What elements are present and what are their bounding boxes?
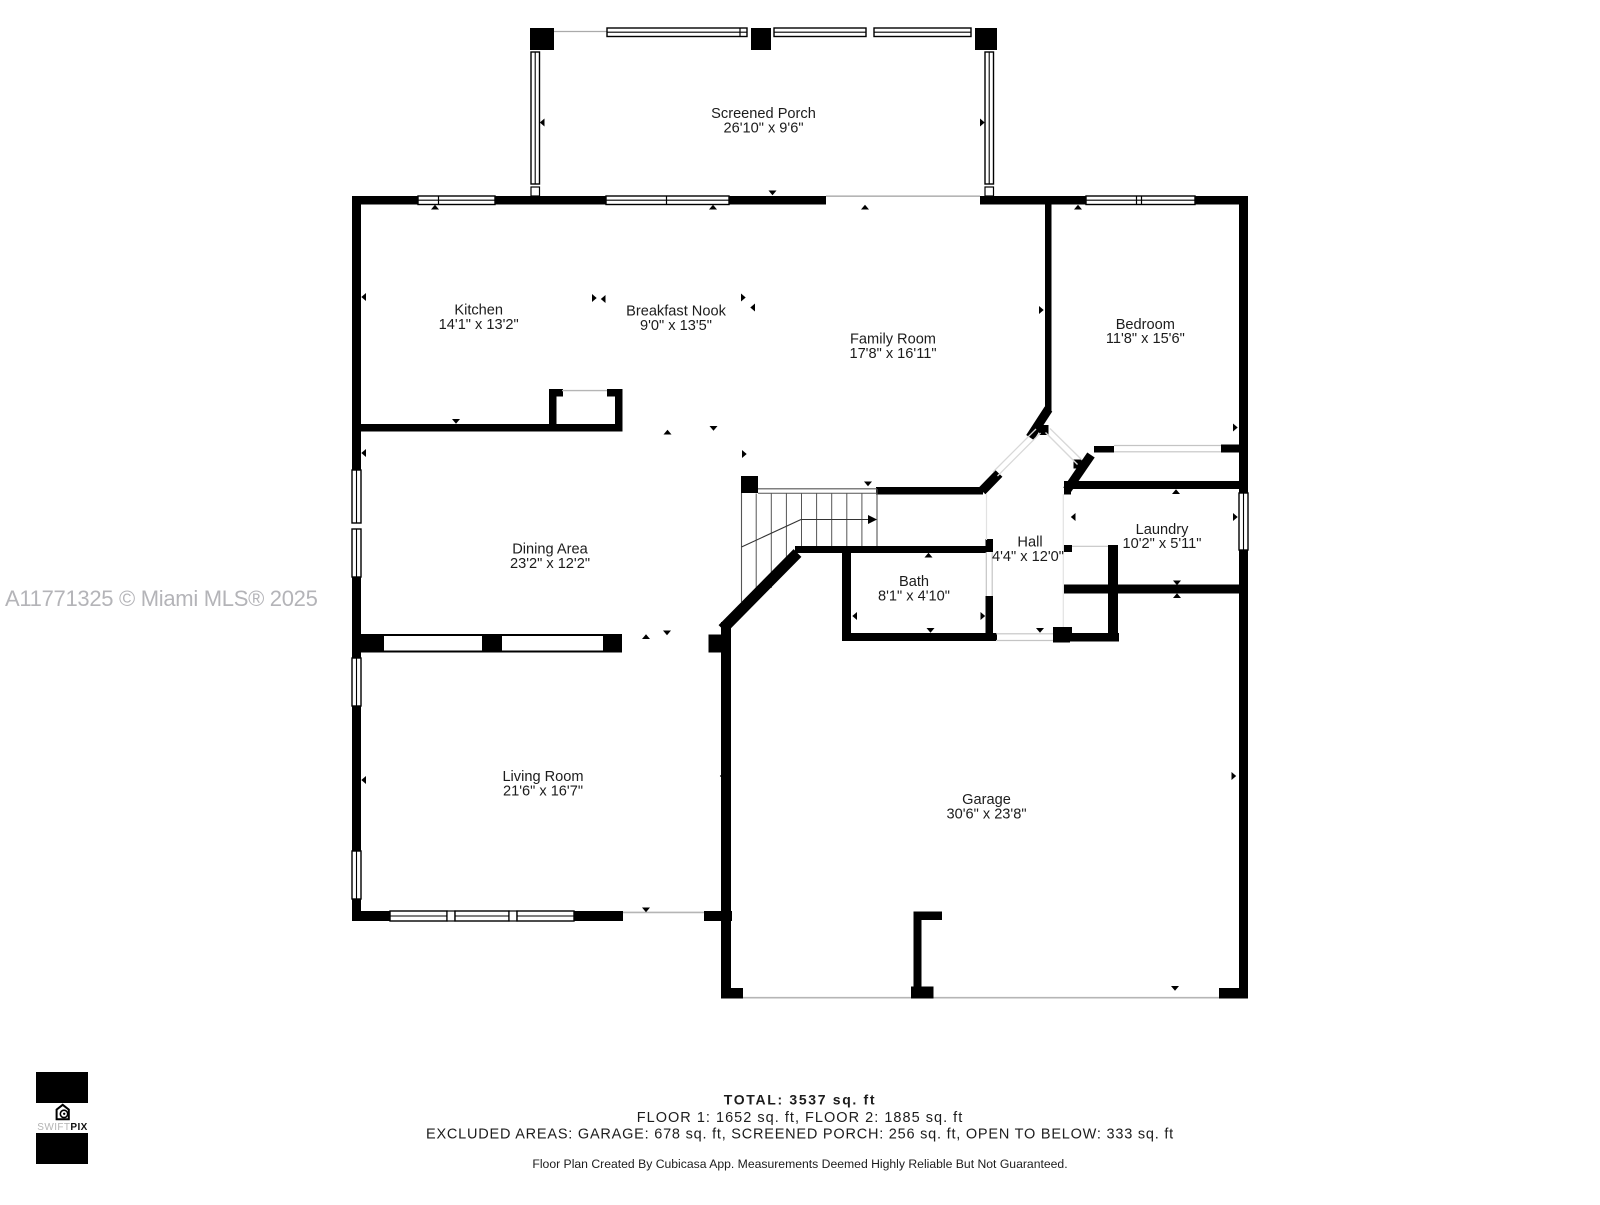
- svg-text:9'0" x 13'5": 9'0" x 13'5": [640, 318, 712, 334]
- svg-text:10'2" x 5'11": 10'2" x 5'11": [1123, 536, 1202, 552]
- svg-text:30'6" x 23'8": 30'6" x 23'8": [946, 806, 1026, 822]
- svg-text:4'4" x 12'0": 4'4" x 12'0": [992, 549, 1064, 565]
- svg-text:14'1" x 13'2": 14'1" x 13'2": [439, 317, 519, 333]
- svg-text:26'10" x 9'6": 26'10" x 9'6": [723, 120, 803, 136]
- svg-text:SWIFTPIX: SWIFTPIX: [37, 1122, 87, 1133]
- svg-text:A11771325 © Miami MLS® 2025: A11771325 © Miami MLS® 2025: [5, 586, 318, 611]
- svg-text:TOTAL: 3537 sq. ft: TOTAL: 3537 sq. ft: [724, 1092, 876, 1108]
- svg-text:8'1" x 4'10": 8'1" x 4'10": [878, 588, 950, 604]
- svg-text:17'8" x 16'11": 17'8" x 16'11": [849, 346, 936, 362]
- svg-text:23'2" x 12'2": 23'2" x 12'2": [510, 556, 590, 572]
- svg-text:EXCLUDED AREAS: GARAGE: 678 sq: EXCLUDED AREAS: GARAGE: 678 sq. ft, SCRE…: [426, 1127, 1174, 1143]
- svg-text:21'6" x 16'7": 21'6" x 16'7": [503, 783, 583, 799]
- svg-text:11'8" x 15'6": 11'8" x 15'6": [1106, 331, 1185, 347]
- svg-text:FLOOR 1: 1652 sq. ft, FLOOR 2:: FLOOR 1: 1652 sq. ft, FLOOR 2: 1885 sq. …: [637, 1110, 964, 1126]
- svg-text:Floor Plan Created By Cubicasa: Floor Plan Created By Cubicasa App. Meas…: [532, 1157, 1067, 1171]
